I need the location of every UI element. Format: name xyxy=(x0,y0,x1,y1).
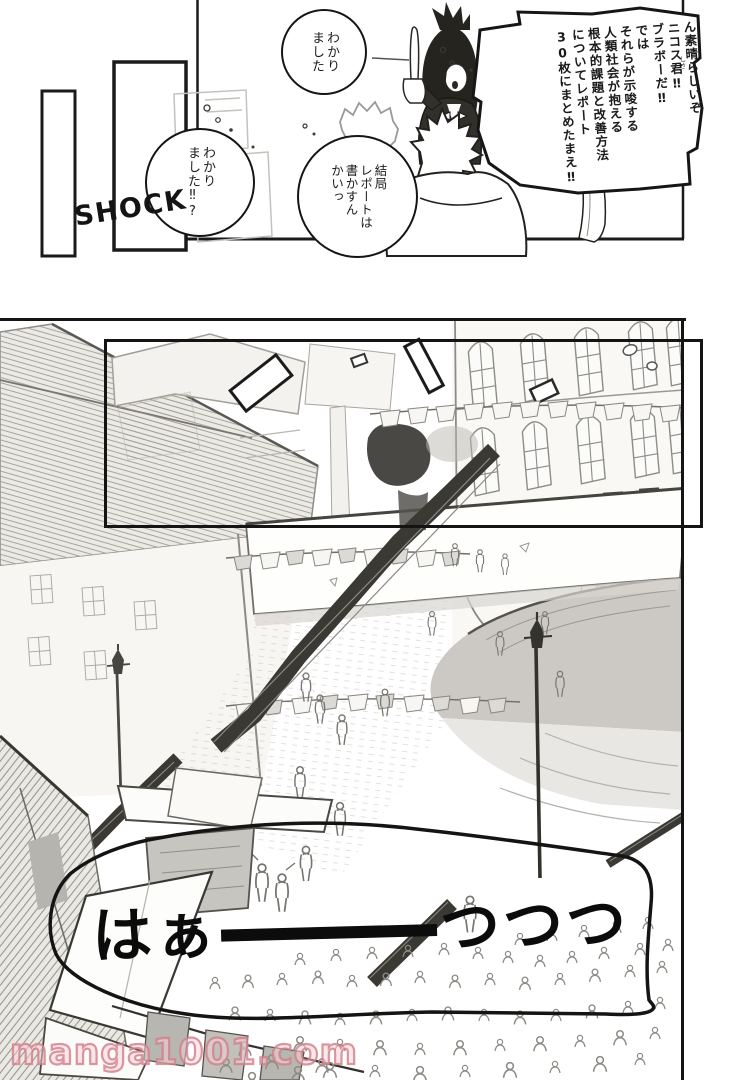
speech-text: 結局 レポートは 書かすん かいっ xyxy=(329,164,387,229)
sigh-prefix: はぁ xyxy=(91,902,219,969)
teacher-speech-text: ん素晴らしいぞ ニコス君‼ ブラボーだ‼ では それらが示唆する 人類社会が抱え… xyxy=(548,20,708,206)
watermark: manga1001.com xyxy=(10,1032,358,1073)
teacher-pointing-finger xyxy=(410,27,418,79)
inset-frame xyxy=(104,339,703,528)
teacher-mouth xyxy=(452,81,458,89)
teacher-hand xyxy=(403,79,425,103)
speech-bubble-wakarimashita-1: わかり ました xyxy=(281,9,367,95)
speech-bubble-wakarimashita-2: わかり ました‼? xyxy=(145,128,255,237)
manga-page: わかり ました わかり ました‼? 結局 レポートは 書かすん かいっ ん素晴ら… xyxy=(0,0,749,1080)
furigana-shisa: しさ xyxy=(677,56,687,69)
elongation-bar xyxy=(221,924,437,942)
speech-text: わかり ました‼? xyxy=(185,146,215,220)
bubble-pointer-line xyxy=(372,58,409,60)
speech-text: わかり ました xyxy=(309,31,339,73)
teacher-ponytail xyxy=(432,2,470,30)
speech-bubble-kekkyoku: 結局 レポートは 書かすん かいっ xyxy=(297,135,418,258)
margin-rectangle-small xyxy=(42,91,75,256)
sigh-big-text: はぁ つつつ xyxy=(91,891,629,969)
sigh-suffix: つつつ xyxy=(439,891,630,960)
